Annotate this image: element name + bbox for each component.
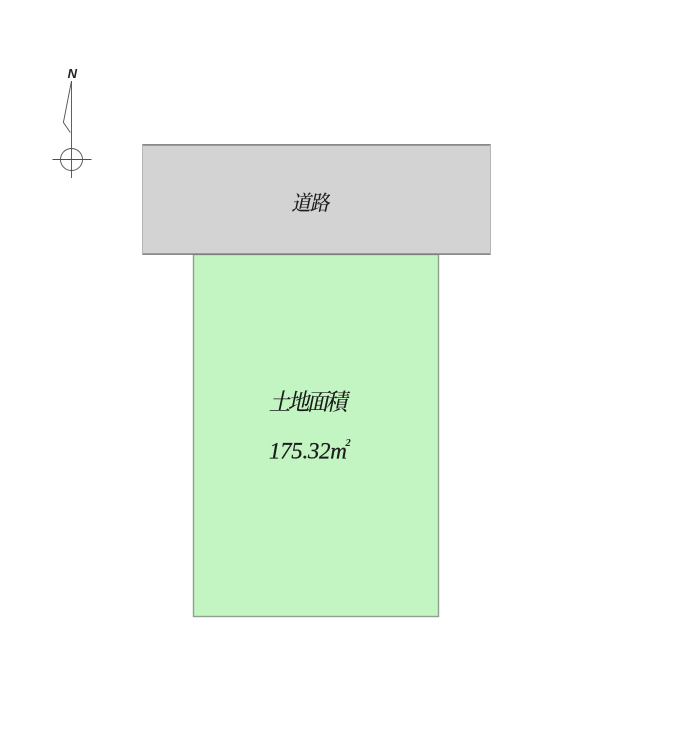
svg-text:N: N: [68, 66, 78, 81]
svg-text:m: m: [330, 439, 347, 464]
svg-text:175.32: 175.32: [269, 439, 330, 464]
svg-text:2: 2: [345, 438, 352, 449]
